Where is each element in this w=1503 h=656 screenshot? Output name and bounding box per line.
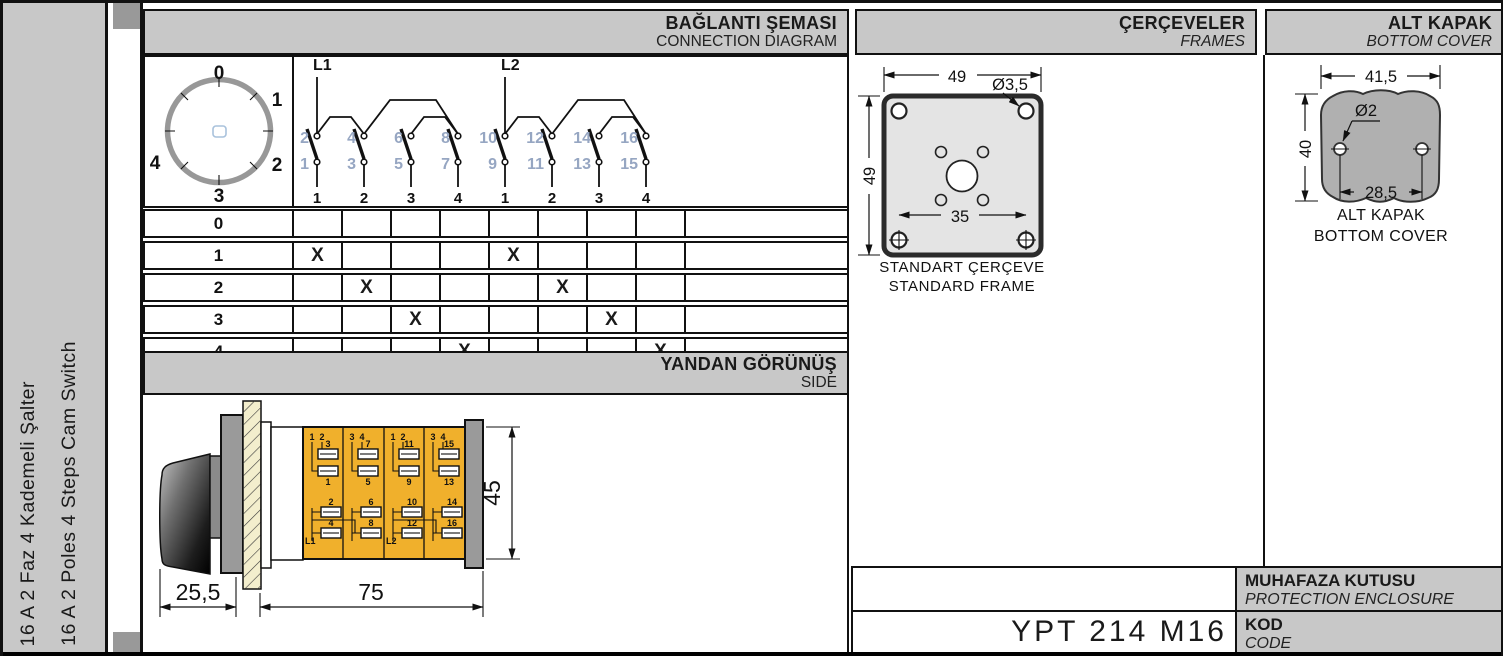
wire-number: 4 <box>440 432 445 442</box>
corner-block-top <box>113 3 143 29</box>
panel-section <box>243 401 261 589</box>
code-value: YPT 214 M16 <box>1011 615 1227 649</box>
mark-cell <box>292 211 341 236</box>
enclosure-label-tr: MUHAFAZA KUTUSU <box>1245 571 1502 591</box>
mark-cell <box>390 275 439 300</box>
terminal-number: 15 <box>444 439 454 449</box>
table-row: 3 X X <box>143 305 849 334</box>
mark-cell: X <box>390 307 439 332</box>
mark-cell <box>390 211 439 236</box>
cover-plate <box>1321 90 1440 202</box>
code-label-tr: KOD <box>1245 615 1502 635</box>
switch-base <box>271 427 303 560</box>
mark-cell <box>390 243 439 268</box>
dimension-label: 49 <box>861 167 879 185</box>
mark-cell <box>635 211 684 236</box>
dimension-label: 49 <box>948 68 966 86</box>
header-side-tr: YANDAN GÖRÜNÜŞ <box>660 354 837 374</box>
terminal-number: 4 <box>328 518 333 528</box>
page-bottom-rule <box>3 652 1503 656</box>
terminal-clamp <box>318 466 338 476</box>
dimension-label: 40 <box>1297 140 1315 158</box>
terminal-number: 16 <box>447 518 457 528</box>
terminal-number: 11 <box>404 439 414 449</box>
dimension-label: 25,5 <box>176 579 221 605</box>
frame-small-hole <box>936 147 947 158</box>
terminal-number: 14 <box>447 497 457 507</box>
terminal-number: 1 <box>325 477 330 487</box>
code-label-cell: KOD CODE <box>1235 610 1503 654</box>
hole-crosshairs <box>889 230 1036 250</box>
cam-stack-body <box>303 427 465 559</box>
frame-corner-hole <box>892 104 907 119</box>
mark-cell <box>439 307 488 332</box>
cam-section: 1 2 3 1 2 4 L1 <box>305 432 361 546</box>
terminal-clamp <box>402 507 422 517</box>
wire-number: 2 <box>319 432 324 442</box>
header-side-en: SIDE <box>801 374 837 391</box>
section-wiring <box>312 442 361 541</box>
header-connection-tr: BAĞLANTI ŞEMASI <box>665 13 837 33</box>
mark-cell <box>488 307 537 332</box>
frame-plate <box>884 96 1041 255</box>
mark-cell: X <box>292 243 341 268</box>
mark-cell <box>439 243 488 268</box>
terminal-clamp <box>442 528 462 538</box>
table-row: 0 <box>143 209 849 238</box>
table-spacer-cell <box>684 275 847 300</box>
terminal-clamp <box>321 507 341 517</box>
mark-cell <box>488 275 537 300</box>
feed-label: L2 <box>386 536 397 546</box>
terminal-clamp <box>399 449 419 459</box>
mark-cell: X <box>537 275 586 300</box>
mark-cell: X <box>341 275 390 300</box>
frame-small-hole <box>978 195 989 206</box>
terminal-clamp <box>402 528 422 538</box>
terminal-clamp <box>361 507 381 517</box>
dimension-label: Ø2 <box>1355 102 1377 120</box>
dimension-label: 35 <box>951 208 969 226</box>
table-spacer-cell <box>684 211 847 236</box>
enclosure-label-en: PROTECTION ENCLOSURE <box>1245 591 1502 610</box>
mark-cell <box>586 211 635 236</box>
mark-cell <box>586 275 635 300</box>
terminal-clamp <box>358 449 378 459</box>
catalog-page: 16 A 2 Faz 4 Kademeli Şalter 16 A 2 Pole… <box>0 0 1503 656</box>
terminal-clamp <box>361 528 381 538</box>
terminal-number: 6 <box>368 497 373 507</box>
table-row: 2 X X <box>143 273 849 302</box>
row-label: 3 <box>145 307 292 332</box>
cover-caption-tr: ALT KAPAK <box>1337 207 1425 224</box>
row-label: 1 <box>145 243 292 268</box>
corner-block-bottom <box>113 632 143 652</box>
wire-number: 2 <box>400 432 405 442</box>
terminal-number: 5 <box>365 477 370 487</box>
frame-corner-hole <box>892 233 907 248</box>
extension-lines <box>160 427 520 617</box>
header-cover-tr: ALT KAPAK <box>1388 13 1492 33</box>
sidebar-title-turkish: 16 A 2 Faz 4 Kademeli Şalter <box>17 381 40 646</box>
table-spacer-cell <box>684 243 847 268</box>
header-bottom-cover: ALT KAPAK BOTTOM COVER <box>1265 9 1503 55</box>
wire-number: 1 <box>390 432 395 442</box>
side-view-drawing: 1 2 3 1 2 4 L1 3 4 <box>160 401 520 617</box>
panel-hatch <box>243 401 261 589</box>
dimension-label: 41,5 <box>1365 68 1397 86</box>
section-wiring <box>433 442 443 541</box>
mark-cell: X <box>488 243 537 268</box>
mark-cell <box>537 307 586 332</box>
mark-cell <box>635 243 684 268</box>
sidebar-title-english: 16 A 2 Poles 4 Steps Cam Switch <box>58 341 81 646</box>
extension-lines <box>858 67 1041 255</box>
end-plate <box>465 420 483 568</box>
mounting-plate <box>221 415 243 573</box>
header-side-view: YANDAN GÖRÜNÜŞ SIDE <box>143 351 849 395</box>
dimension-label: Ø3,5 <box>992 76 1028 94</box>
connection-diagram-box <box>143 55 849 208</box>
leader-line <box>1003 93 1019 106</box>
row-label: 2 <box>145 275 292 300</box>
mark-cell <box>537 243 586 268</box>
terminal-number: 3 <box>325 439 330 449</box>
knob-collar <box>210 456 221 538</box>
mark-cell <box>341 211 390 236</box>
terminal-number: 7 <box>365 439 370 449</box>
terminal-number: 8 <box>368 518 373 528</box>
sidebar: 16 A 2 Faz 4 Kademeli Şalter 16 A 2 Pole… <box>3 3 108 654</box>
terminal-number: 12 <box>407 518 417 528</box>
terminal-clamp <box>318 449 338 459</box>
mark-cell <box>635 275 684 300</box>
cam-section: 3 4 7 5 6 8 <box>349 432 381 541</box>
wire-number: 3 <box>349 432 354 442</box>
mark-cell <box>439 275 488 300</box>
terminal-clamp <box>399 466 419 476</box>
table-spacer-cell <box>684 307 847 332</box>
terminal-clamp <box>439 449 459 459</box>
wire-number: 4 <box>359 432 364 442</box>
frame-small-hole <box>936 195 947 206</box>
terminal-clamp <box>442 507 462 517</box>
mark-cell <box>292 307 341 332</box>
enclosure-value-cell <box>851 566 1237 612</box>
section-wiring <box>393 442 442 541</box>
code-value-cell: YPT 214 M16 <box>851 610 1237 654</box>
terminal-clamp <box>358 466 378 476</box>
cam-section-dividers <box>343 427 424 559</box>
enclosure-label-cell: MUHAFAZA KUTUSU PROTECTION ENCLOSURE <box>1235 566 1503 612</box>
terminal-number: 9 <box>406 477 411 487</box>
shaft-step <box>261 422 271 568</box>
extension-lines <box>1295 65 1440 201</box>
header-frames: ÇERÇEVELER FRAMES <box>855 9 1257 55</box>
cover-hole <box>1416 143 1428 155</box>
switch-position-table: 0 1 X X 2 X <box>143 209 849 366</box>
mark-cell: X <box>586 307 635 332</box>
frame-drawing: 49 Ø3,5 49 35 STANDART ÇERÇEVE STANDARD … <box>858 67 1045 295</box>
frame-caption-en: STANDARD FRAME <box>889 278 1035 295</box>
wire-number: 3 <box>430 432 435 442</box>
bottom-cover-drawing: 41,5 40 Ø2 28,5 ALT KAPAK BOTTOM COVER <box>1295 65 1448 245</box>
mark-cell <box>537 211 586 236</box>
dimension-label: 45 <box>479 480 505 506</box>
terminal-number: 13 <box>444 477 454 487</box>
header-connection-diagram: BAĞLANTI ŞEMASI CONNECTION DIAGRAM <box>143 9 849 55</box>
mark-cell <box>488 211 537 236</box>
frame-corner-hole <box>1019 233 1034 248</box>
frame-corner-hole <box>1019 104 1034 119</box>
header-connection-en: CONNECTION DIAGRAM <box>656 33 837 50</box>
frame-caption-tr: STANDART ÇERÇEVE <box>879 259 1044 276</box>
mark-cell <box>341 307 390 332</box>
mark-cell <box>586 243 635 268</box>
header-cover-en: BOTTOM COVER <box>1367 33 1492 50</box>
terminal-clamp <box>439 466 459 476</box>
cover-hole <box>1334 143 1346 155</box>
table-row: 1 X X <box>143 241 849 270</box>
mark-cell <box>292 275 341 300</box>
frame-small-hole <box>978 147 989 158</box>
switch-knob <box>160 454 210 574</box>
terminal-clamp <box>321 528 341 538</box>
frame-center-hole <box>947 161 978 192</box>
header-frames-tr: ÇERÇEVELER <box>1119 13 1245 33</box>
terminal-number: 2 <box>328 497 333 507</box>
cam-section: 3 4 15 13 14 16 <box>430 432 462 541</box>
terminal-number: 10 <box>407 497 417 507</box>
row-label: 0 <box>145 211 292 236</box>
section-wiring <box>352 442 362 541</box>
cover-caption-en: BOTTOM COVER <box>1314 228 1448 245</box>
wire-number: 1 <box>309 432 314 442</box>
dimension-label: 75 <box>358 579 384 605</box>
mark-cell <box>635 307 684 332</box>
feed-label: L1 <box>305 536 316 546</box>
header-frames-en: FRAMES <box>1180 33 1245 50</box>
leader-line <box>1343 121 1352 141</box>
dimension-label: 28,5 <box>1365 184 1397 202</box>
cam-section: 1 2 11 9 10 12 L2 <box>386 432 442 546</box>
column-divider-b <box>1263 55 1265 568</box>
mark-cell <box>439 211 488 236</box>
mark-cell <box>341 243 390 268</box>
